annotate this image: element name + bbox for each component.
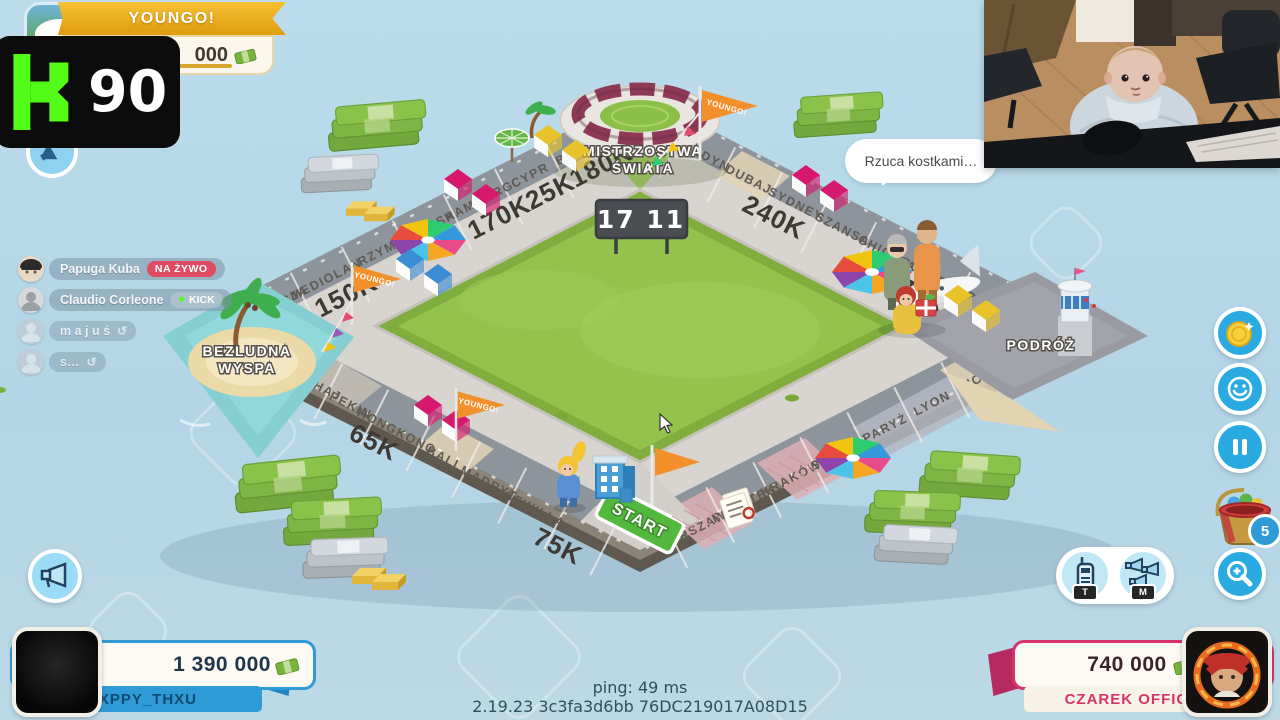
- stadium-label-2: ŚWIATA: [612, 159, 674, 176]
- kick-logo-icon: [12, 54, 74, 130]
- player-row[interactable]: s… ↺: [18, 349, 232, 375]
- kick-viewer-count: 90: [88, 59, 167, 125]
- coin-shop-button[interactable]: [1214, 307, 1266, 359]
- game-screen: BERLIN180KCYPR25KHAMBURG170KSZANSARZYMME…: [0, 0, 1280, 720]
- player-row[interactable]: m a j u ś ↺: [18, 318, 232, 344]
- stream-banner: YOUNGO!: [58, 2, 286, 35]
- announcements-button[interactable]: [28, 549, 82, 603]
- voice-t-label: T: [1072, 584, 1098, 601]
- player-name: Claudio Corleone: [60, 293, 163, 307]
- stream-banner-title: YOUNGO!: [129, 10, 216, 28]
- cash-icon: [234, 46, 258, 64]
- offline-clock-icon: ↺: [86, 355, 96, 369]
- version-text: 2.19.23 3c3fa3d6bb 76DC219017A08D15: [0, 697, 1280, 716]
- stadium-label: MISTRZOSTWA: [583, 143, 703, 159]
- webcam-overlay: [984, 0, 1280, 168]
- pause-button[interactable]: [1214, 421, 1266, 473]
- player-row[interactable]: Papuga Kuba NA ŻYWO: [18, 256, 232, 282]
- kick-badge: ♥KICK: [170, 292, 222, 308]
- smiley-icon: [1226, 375, 1254, 403]
- player-avatar: [18, 318, 44, 344]
- player-name: m a j u ś: [60, 324, 110, 338]
- pause-icon: [1229, 436, 1251, 458]
- zoom-in-button[interactable]: [1214, 548, 1266, 600]
- voice-m-label: M: [1130, 584, 1156, 601]
- player-money: 740 000: [1087, 653, 1166, 677]
- chance-wheel: [815, 437, 891, 479]
- cash-icon: [275, 655, 301, 675]
- live-badge: NA ŻYWO: [147, 261, 216, 277]
- coin-icon: [1225, 318, 1255, 348]
- emotes-button[interactable]: [1214, 363, 1266, 415]
- network-status: ping: 49 ms 2.19.23 3c3fa3d6bb 76DC21901…: [0, 678, 1280, 716]
- ping-text: ping: 49 ms: [0, 678, 1280, 697]
- player-list: Papuga Kuba NA ŻYWO Claudio Corleone ♥KI…: [18, 256, 232, 375]
- svg-text:17 11: 17 11: [597, 205, 685, 234]
- kick-viewer-overlay: 90: [0, 36, 180, 148]
- chance-wheel: [390, 219, 466, 261]
- airport-label: PODRÓŻ: [1007, 336, 1076, 353]
- team-voice-button[interactable]: T: [1062, 552, 1108, 598]
- kick-heart-icon: ♥: [178, 294, 185, 306]
- megaphone-icon: [39, 562, 71, 590]
- all-voice-button[interactable]: M: [1120, 552, 1166, 598]
- audio-controls: T M: [1056, 547, 1174, 604]
- zoom-in-icon: [1225, 559, 1255, 589]
- player-avatar: [18, 256, 44, 282]
- door: [1076, 0, 1138, 42]
- speech-bubble-text: Rzuca kostkami…: [865, 153, 978, 169]
- player-avatar: [18, 349, 44, 375]
- player-name: Papuga Kuba: [60, 262, 140, 276]
- offline-clock-icon: ↺: [117, 324, 127, 338]
- player-avatar: [18, 287, 44, 313]
- player-row[interactable]: Claudio Corleone ♥KICK: [18, 287, 232, 313]
- toy-bucket-button[interactable]: 5: [1210, 484, 1280, 550]
- player-money: 1 390 000: [173, 653, 271, 677]
- bucket-count-badge: 5: [1248, 514, 1280, 548]
- player-name: s…: [60, 355, 79, 369]
- speech-bubble: Rzuca kostkami…: [845, 139, 997, 183]
